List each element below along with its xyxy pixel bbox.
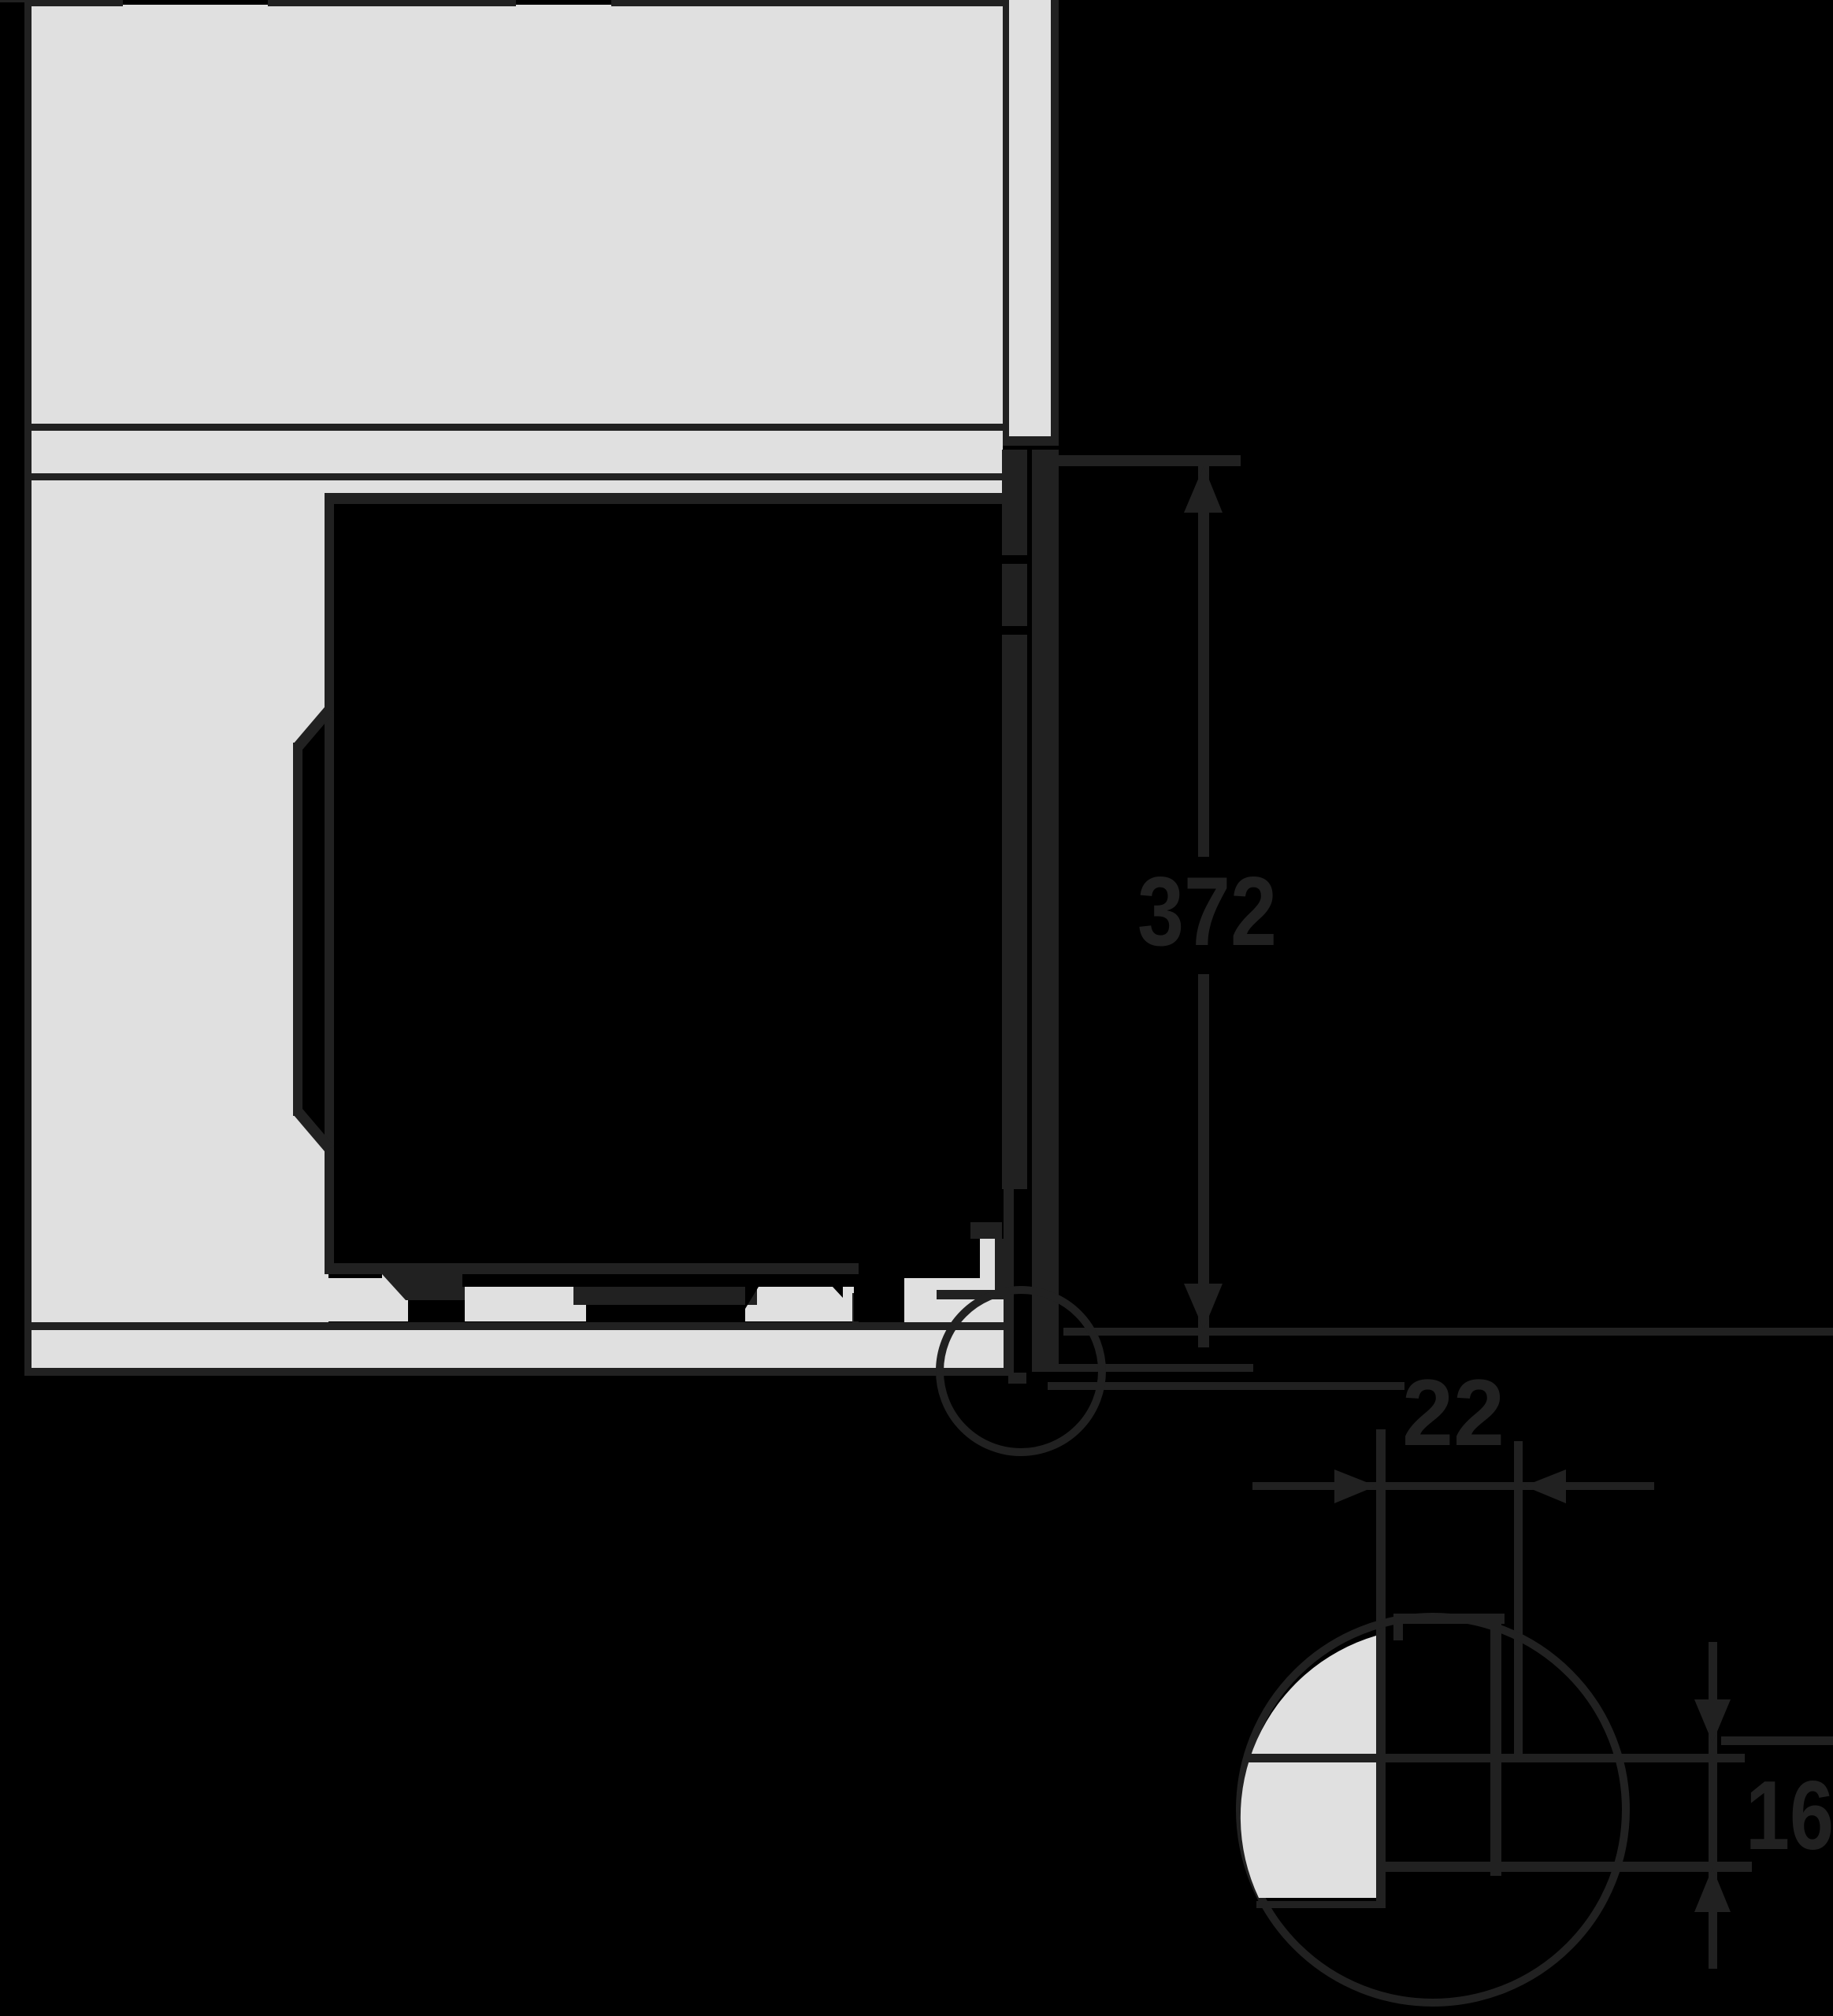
svg-text:22: 22: [1402, 1360, 1505, 1466]
svg-text:372: 372: [1137, 858, 1277, 966]
svg-text:16: 16: [1746, 1762, 1833, 1870]
